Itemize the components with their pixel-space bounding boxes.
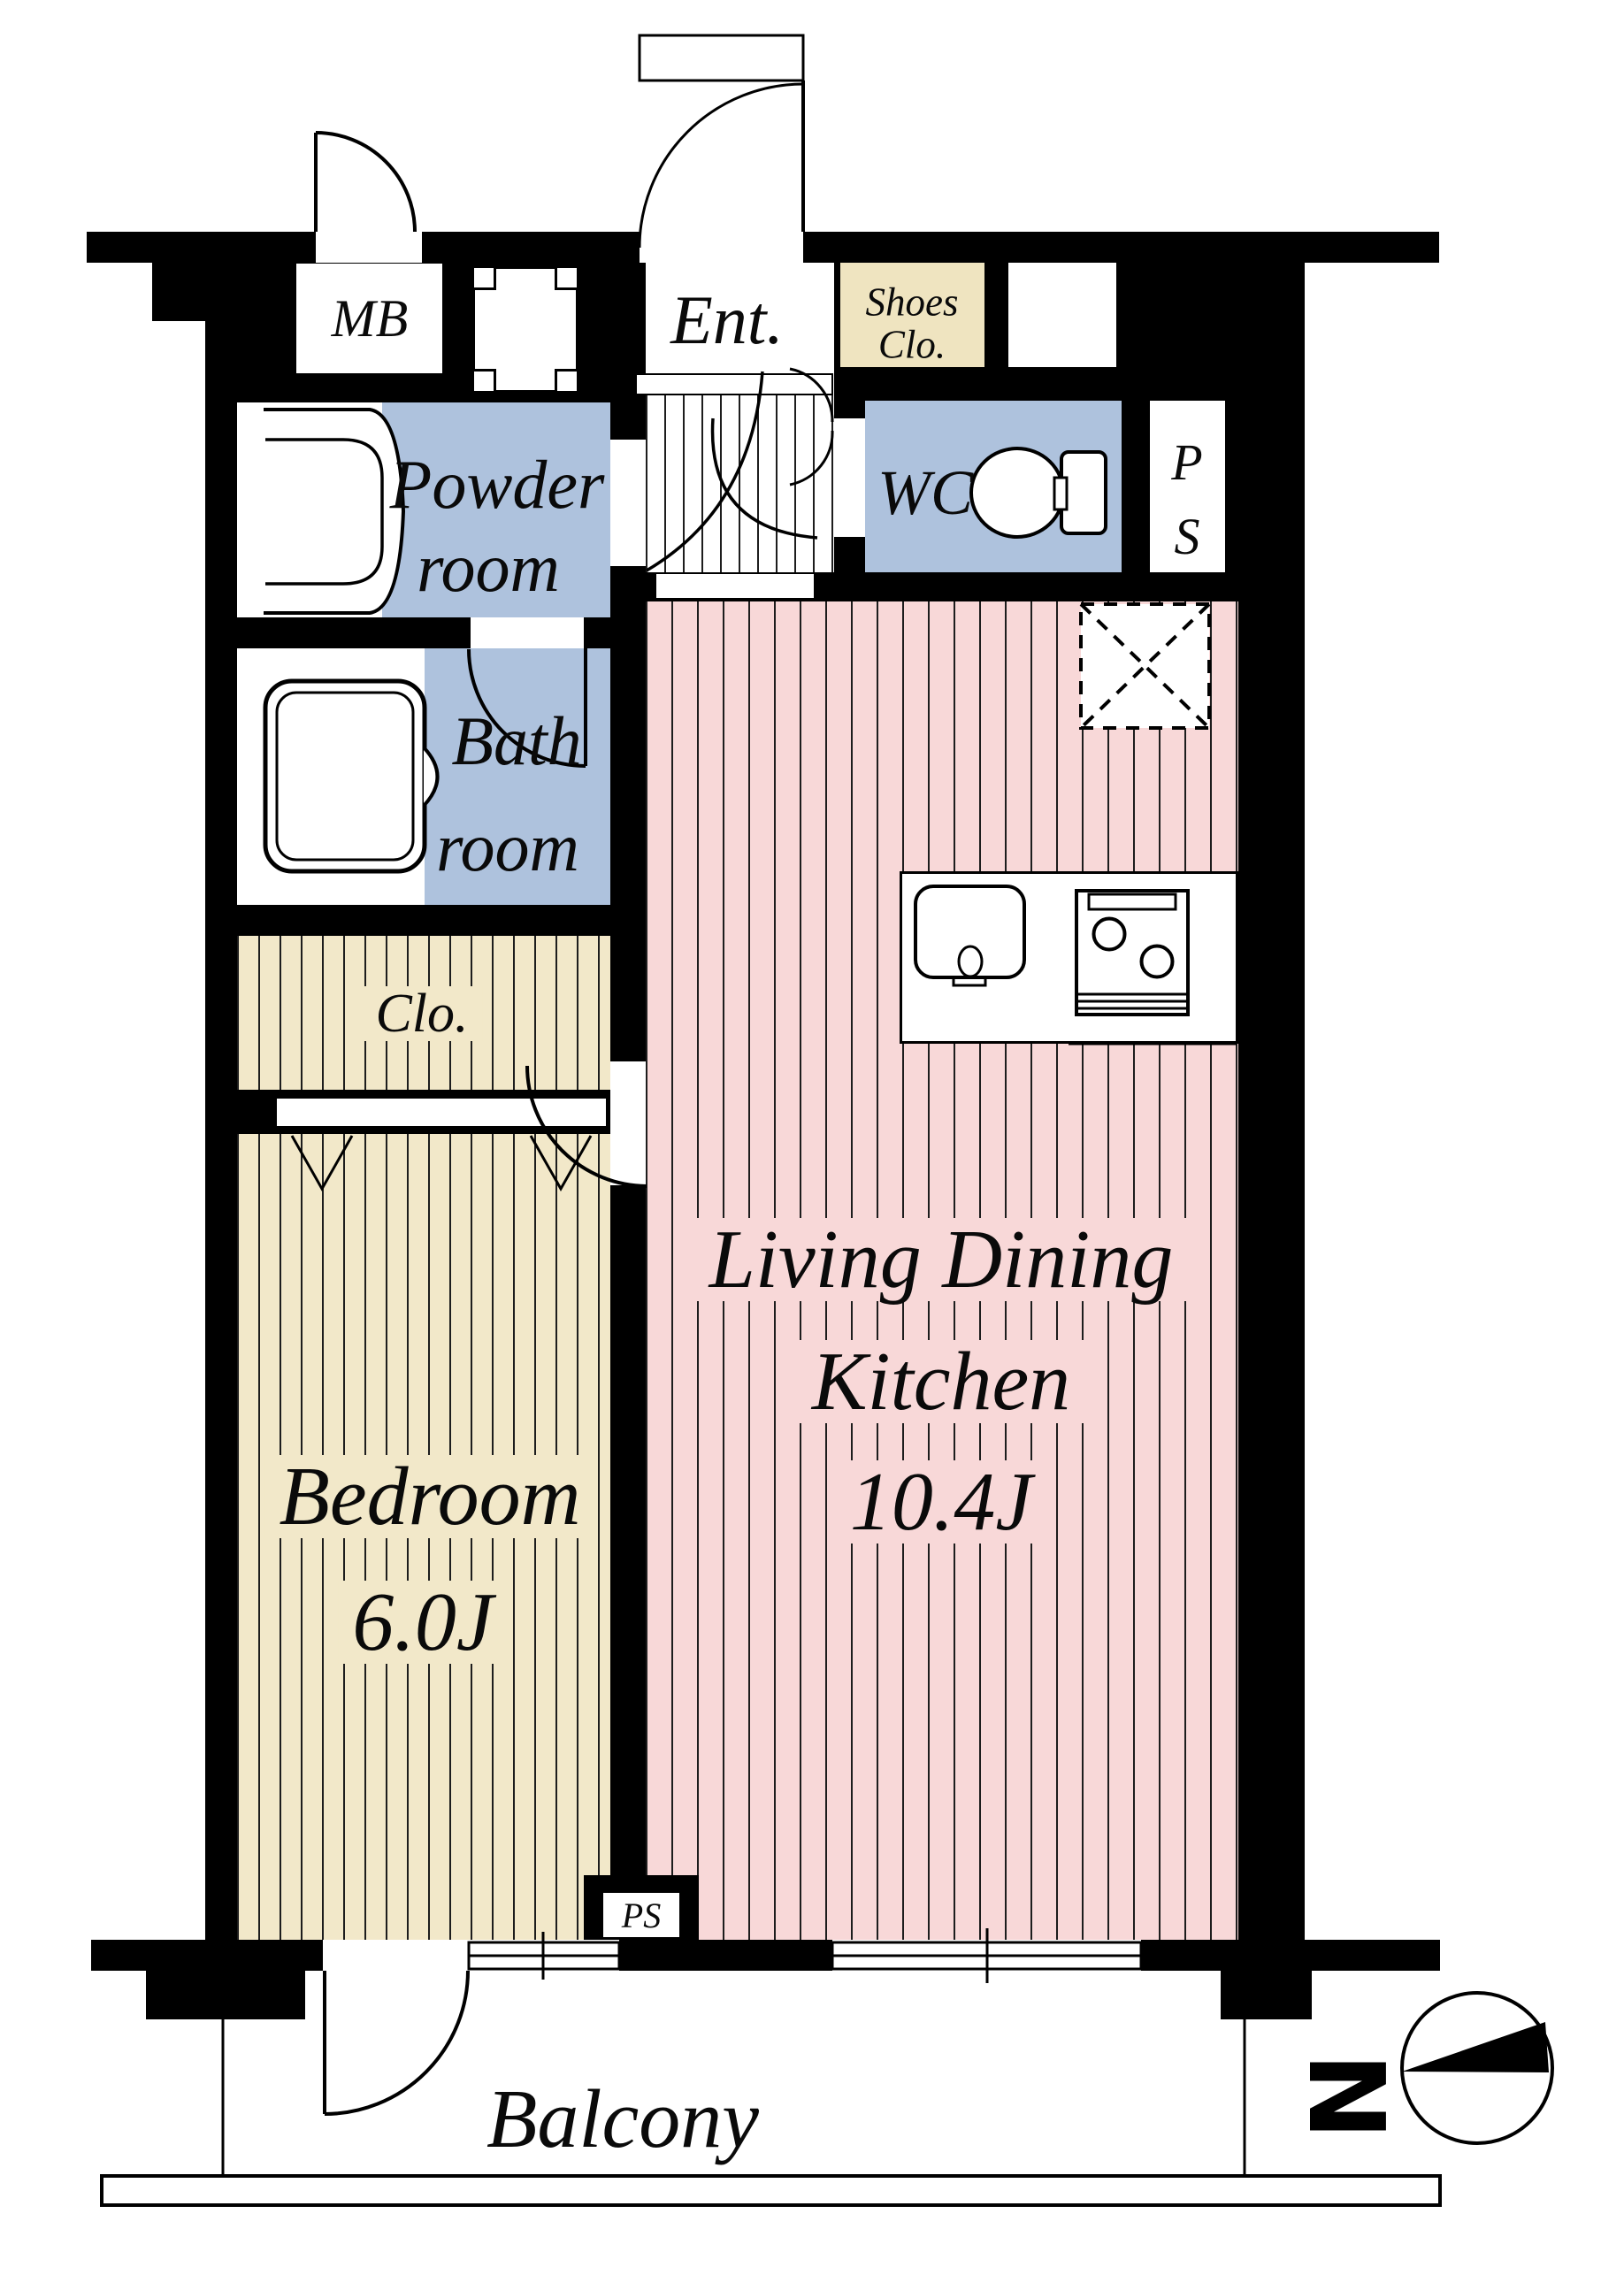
- closet-sliding-door: [274, 1096, 609, 1129]
- balcony-door-swing-icon: [325, 1971, 468, 2114]
- wall-bottom-band: [91, 1940, 1440, 1971]
- opening-powder-door: [610, 440, 646, 566]
- entrance-hall-floor: [646, 395, 834, 572]
- opening-entrance-door: [640, 232, 803, 263]
- entrance-door-swing-icon: [640, 35, 803, 248]
- label-bedroom-size: 6.0J: [338, 1581, 507, 1664]
- bath-tub-area: [237, 648, 425, 905]
- label-ldk-size: 10.4J: [836, 1460, 1046, 1543]
- label-powder-line1: Powder: [390, 450, 605, 519]
- wall-recess-box: [1008, 263, 1116, 367]
- hall-ldk-sill: [655, 572, 816, 600]
- label-entrance: Ent.: [670, 286, 784, 355]
- kitchen-counter: [900, 871, 1238, 1044]
- duct-corner-post: [555, 369, 579, 394]
- opening-mb-door: [316, 232, 422, 263]
- label-shoes-line2: Clo.: [878, 326, 946, 365]
- opening-wc-door: [834, 418, 865, 537]
- label-ldk-line1: Living Dining: [695, 1218, 1188, 1301]
- opening-ldk-window: [832, 1940, 1141, 1971]
- powder-fixture-area: [237, 402, 382, 617]
- wall-topleft-step: [152, 263, 205, 321]
- duct-corner-post: [471, 369, 496, 394]
- label-north: N: [1285, 2053, 1407, 2141]
- opening-balcony-door: [323, 1940, 469, 1971]
- label-bedroom-name: Bedroom: [264, 1455, 594, 1538]
- label-ps-s: S: [1175, 511, 1200, 563]
- label-wc: WC: [877, 461, 973, 525]
- wall-bottomleft-block: [146, 1971, 305, 2019]
- label-powder-line2: room: [417, 533, 560, 602]
- wall-right: [1238, 321, 1305, 1940]
- label-shoes-line1: Shoes: [866, 283, 959, 323]
- balcony-railing: [102, 2019, 1440, 2205]
- label-ps-p: P: [1171, 437, 1202, 488]
- mb-door-swing-icon: [316, 133, 415, 232]
- compass-icon: [1402, 1993, 1552, 2143]
- entrance-threshold: [635, 373, 833, 395]
- label-ps-small: PS: [622, 1898, 661, 1934]
- wall-bottomright-block: [1221, 1971, 1312, 2019]
- duct-corner-post: [555, 265, 579, 290]
- label-bath-line1: Bath: [451, 707, 581, 776]
- opening-bedroom-door: [610, 1061, 646, 1185]
- label-bath-line2: room: [436, 813, 579, 882]
- wall-bath-bottom: [237, 905, 610, 936]
- floorplan-page: MB Ent. Shoes Clo. Powder room WC P S Ba…: [0, 0, 1624, 2275]
- opening-bedroom-window: [469, 1940, 619, 1971]
- opening-bath-door: [471, 617, 584, 648]
- label-ldk-line2: Kitchen: [798, 1340, 1084, 1423]
- label-mb: MB: [332, 292, 409, 345]
- label-balcony: Balcony: [486, 2078, 759, 2161]
- duct-corner-post: [471, 265, 496, 290]
- label-closet: Clo.: [361, 986, 482, 1041]
- wall-left: [205, 263, 237, 1940]
